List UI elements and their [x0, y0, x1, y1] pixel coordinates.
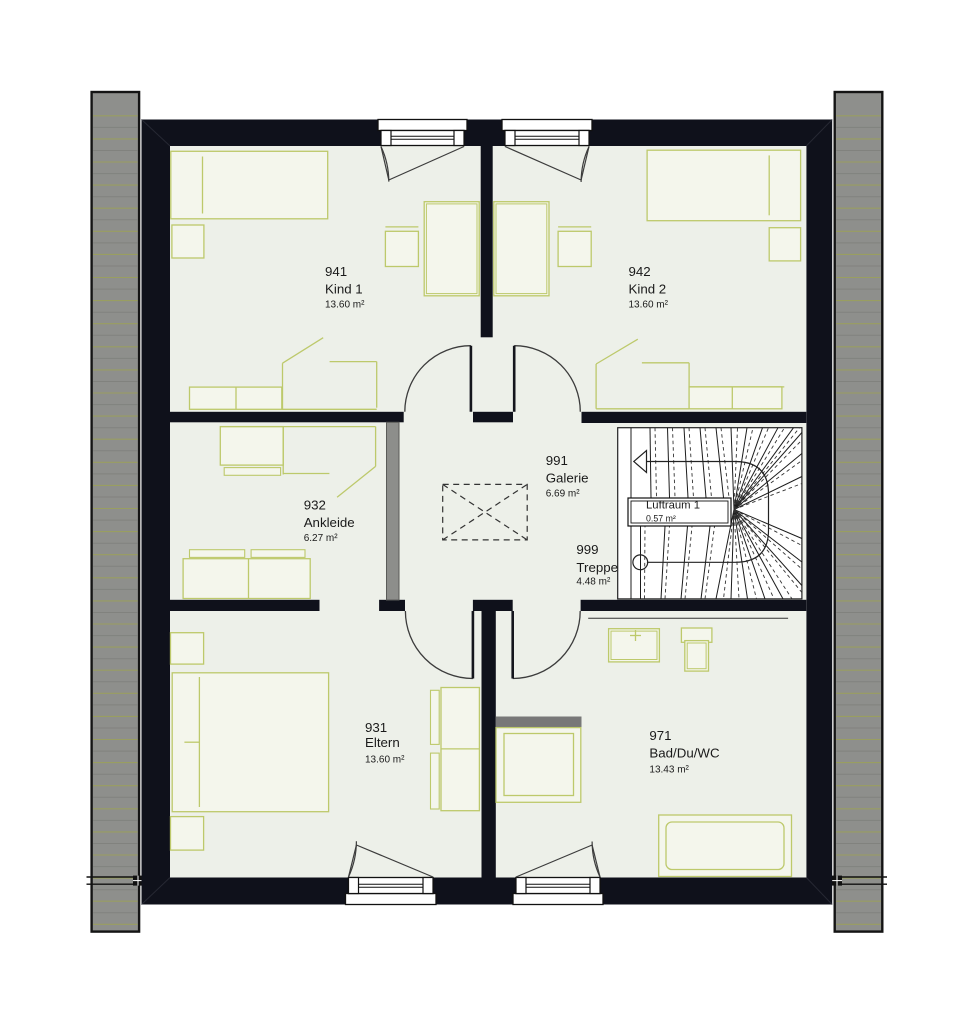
svg-text:Ankleide: Ankleide — [304, 515, 355, 530]
svg-text:931: 931 — [365, 720, 387, 735]
svg-text:6.69 m²: 6.69 m² — [546, 489, 581, 500]
svg-text:4.48 m²: 4.48 m² — [576, 577, 611, 588]
svg-text:Treppe: Treppe — [576, 560, 618, 575]
svg-text:999: 999 — [576, 542, 598, 557]
svg-text:6.27 m²: 6.27 m² — [304, 533, 339, 544]
svg-text:13.60 m²: 13.60 m² — [325, 300, 365, 311]
svg-text:941: 941 — [325, 264, 347, 279]
svg-text:932: 932 — [304, 498, 326, 513]
svg-text:Kind 2: Kind 2 — [629, 282, 667, 297]
svg-text:13.43 m²: 13.43 m² — [649, 765, 689, 776]
svg-text:Bad/Du/WC: Bad/Du/WC — [649, 746, 720, 761]
svg-text:Eltern: Eltern — [365, 735, 400, 750]
svg-text:13.60 m²: 13.60 m² — [365, 755, 405, 766]
svg-text:Galerie: Galerie — [546, 471, 589, 486]
svg-text:971: 971 — [649, 728, 671, 743]
svg-text:13.60 m²: 13.60 m² — [629, 300, 669, 311]
svg-text:Kind 1: Kind 1 — [325, 282, 363, 297]
svg-text:991: 991 — [546, 453, 568, 468]
svg-text:942: 942 — [629, 264, 651, 279]
svg-text:0.57 m²: 0.57 m² — [646, 514, 676, 524]
svg-text:Luftraum 1: Luftraum 1 — [646, 500, 700, 512]
